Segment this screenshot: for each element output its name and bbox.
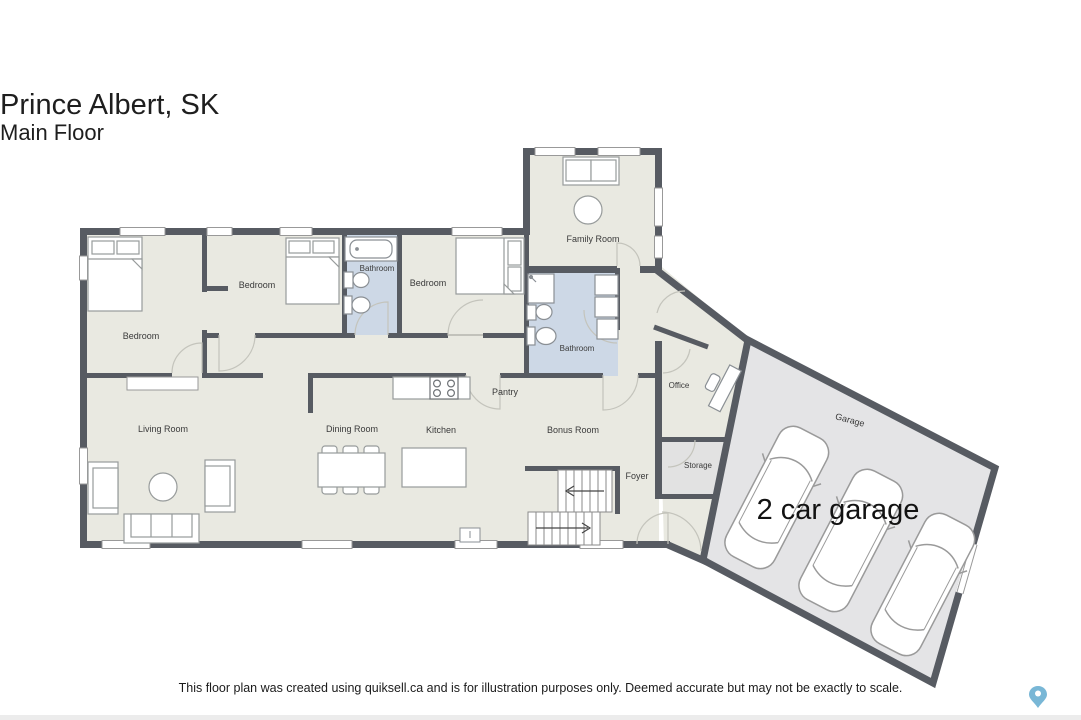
room-label-storage: Storage <box>684 461 713 470</box>
footer-disclaimer: This floor plan was created using quikse… <box>0 681 1081 695</box>
room-label-living-room: Living Room <box>138 424 188 434</box>
room-label-pantry: Pantry <box>492 387 519 397</box>
toilet-icon <box>527 327 556 345</box>
armchair-icon <box>205 460 235 512</box>
room-label-dining-room: Dining Room <box>326 424 378 434</box>
bed-icon <box>456 238 524 294</box>
coffee-table-icon <box>149 473 177 501</box>
room-label-foyer: Foyer <box>625 471 648 481</box>
room-label-bathroom-top: Bathroom <box>360 264 395 273</box>
dining-table-icon <box>318 446 385 494</box>
closet-shelf <box>127 377 198 390</box>
stove-icon <box>430 377 458 399</box>
sink-icon <box>344 272 369 288</box>
floor-plan-page: Prince Albert, SK Main Floor <box>0 0 1081 720</box>
bed-icon <box>286 238 339 304</box>
room-label-bedroom-right: Bedroom <box>410 278 447 288</box>
room-label-bedroom-left: Bedroom <box>123 331 160 341</box>
bottom-strip <box>0 715 1081 720</box>
vanity-cabinets <box>595 275 618 339</box>
toilet-icon <box>344 296 370 314</box>
fixture-icon <box>460 528 480 542</box>
garage-caption: 2 car garage <box>757 494 920 526</box>
sofa-icon <box>563 157 619 185</box>
room-label-bonus-room: Bonus Room <box>547 425 599 435</box>
room-label-kitchen: Kitchen <box>426 425 456 435</box>
room-label-bathroom-main: Bathroom <box>560 344 595 353</box>
sink-icon <box>527 305 552 321</box>
room-label-family-room: Family Room <box>566 234 619 244</box>
bathtub-icon <box>345 237 397 261</box>
armchair-icon <box>88 462 118 514</box>
sofa-icon <box>124 514 199 543</box>
room-label-bedroom-middle: Bedroom <box>239 280 276 290</box>
map-pin-icon[interactable] <box>1028 684 1048 710</box>
kitchen-island <box>402 448 466 487</box>
shower-icon <box>528 274 554 303</box>
floor-plan-svg: Bedroom Bedroom Bathroom Bedroom Family … <box>0 0 1081 720</box>
round-table-icon <box>574 196 602 224</box>
bed-icon <box>88 237 142 311</box>
room-label-office: Office <box>669 381 690 390</box>
